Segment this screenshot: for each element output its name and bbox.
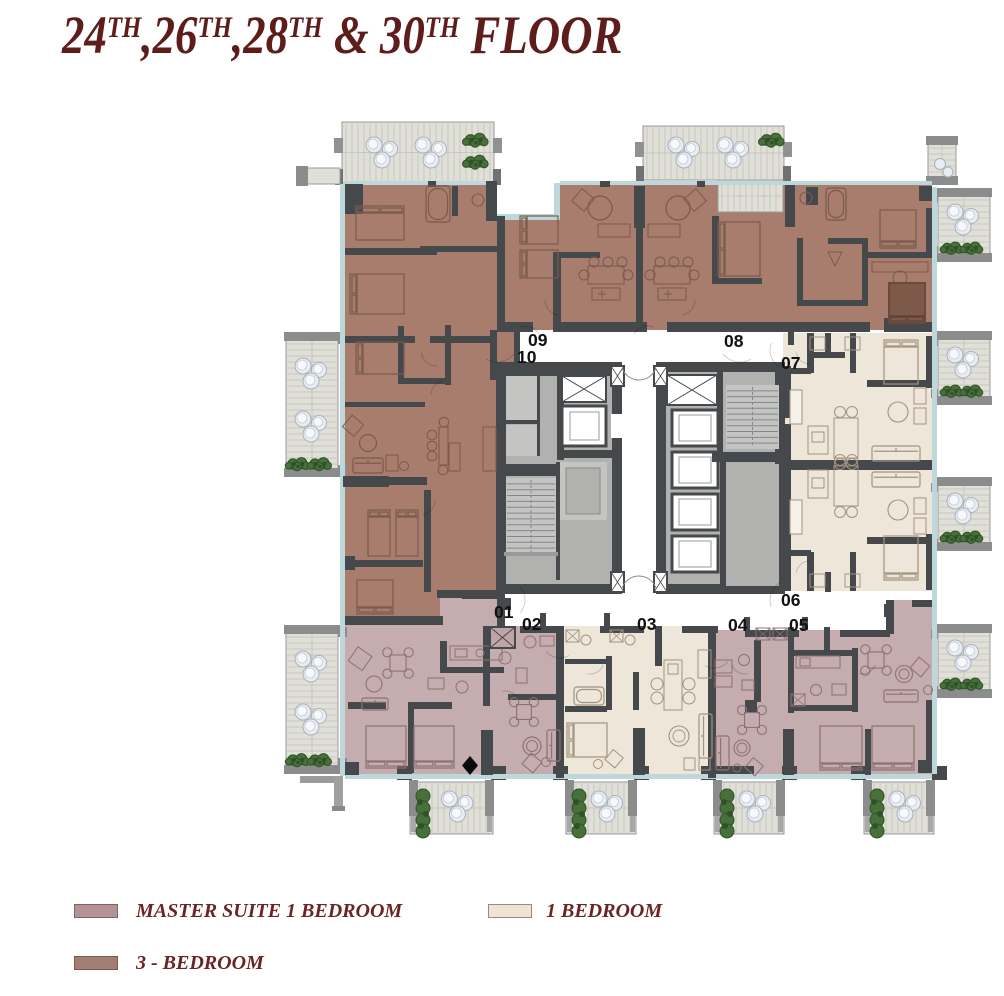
svg-text:04: 04 [728, 615, 748, 635]
svg-text:07: 07 [781, 353, 800, 373]
svg-text:03: 03 [637, 614, 657, 634]
svg-text:05: 05 [789, 615, 809, 635]
svg-text:01: 01 [494, 602, 514, 622]
svg-text:08: 08 [724, 331, 744, 351]
svg-text:06: 06 [781, 590, 801, 610]
svg-text:02: 02 [522, 614, 542, 634]
svg-text:10: 10 [517, 347, 537, 367]
